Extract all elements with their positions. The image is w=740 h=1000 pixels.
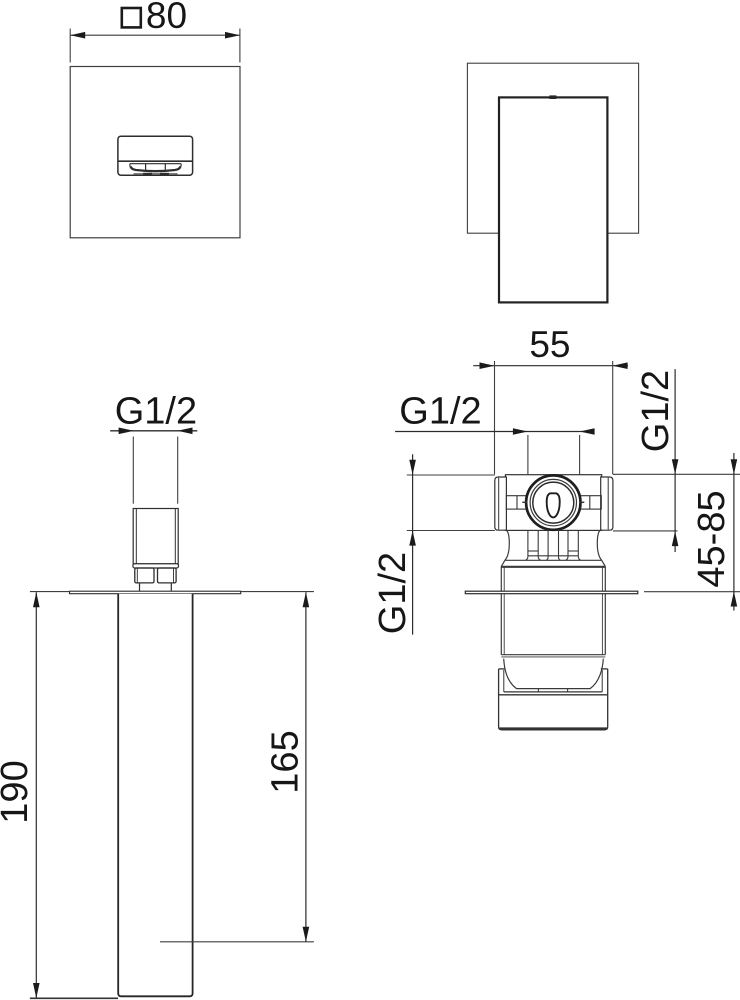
svg-text:G1/2: G1/2 (399, 391, 481, 433)
svg-text:55: 55 (529, 324, 570, 365)
svg-text:45-85: 45-85 (691, 490, 733, 587)
svg-text:G1/2: G1/2 (635, 370, 677, 452)
svg-text:G1/2: G1/2 (372, 552, 414, 634)
svg-text:G1/2: G1/2 (115, 391, 197, 433)
svg-text:190: 190 (0, 760, 36, 823)
svg-text:165: 165 (265, 730, 307, 793)
svg-text:80: 80 (146, 0, 187, 36)
